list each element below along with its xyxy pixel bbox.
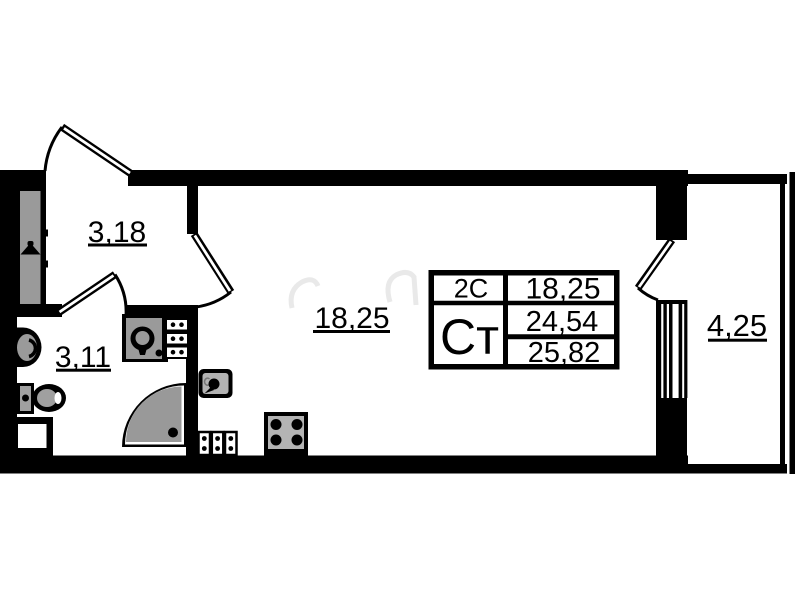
svg-text:18,25: 18,25 (525, 273, 600, 306)
svg-text:Ст: Ст (440, 309, 499, 365)
svg-text:24,54: 24,54 (526, 306, 599, 338)
svg-text:2С: 2С (454, 274, 489, 304)
svg-text:25,82: 25,82 (528, 337, 601, 369)
svg-text:4,25: 4,25 (707, 308, 767, 343)
